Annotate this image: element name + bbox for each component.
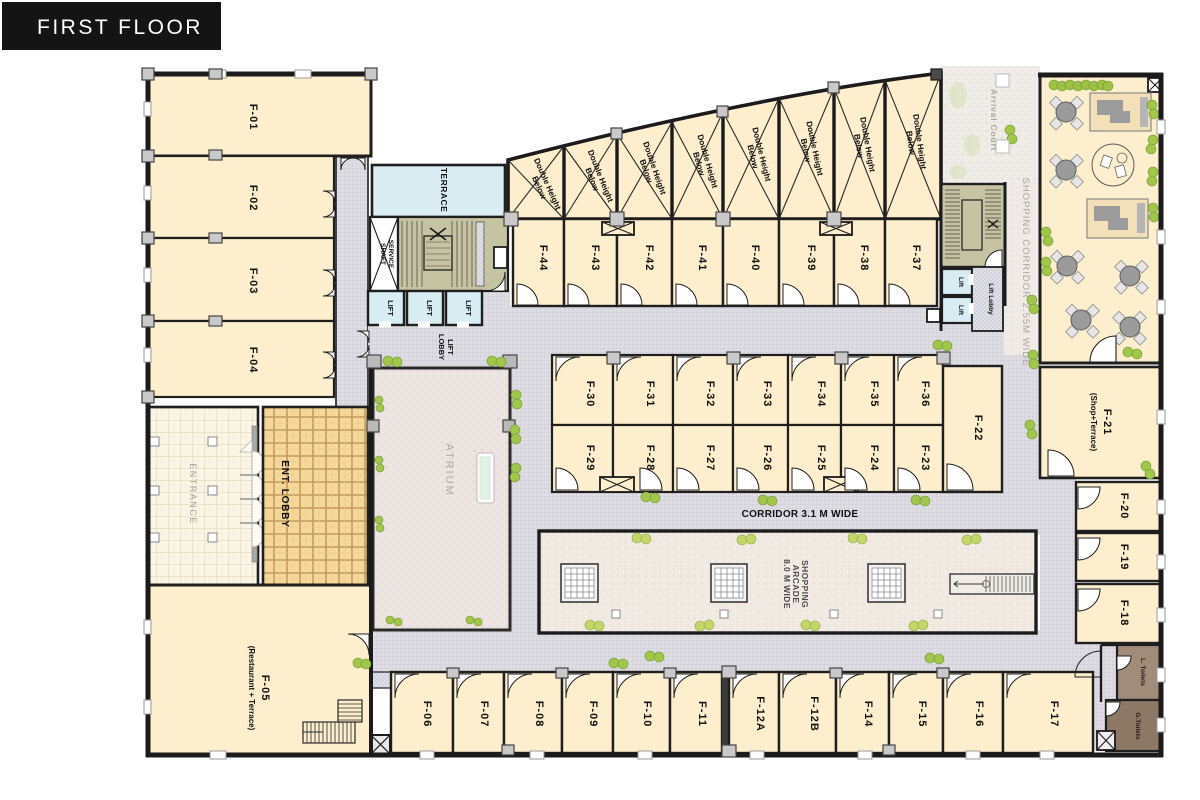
svg-text:F-01: F-01 bbox=[247, 104, 259, 131]
svg-text:F-12A: F-12A bbox=[754, 696, 766, 732]
svg-text:F-42: F-42 bbox=[643, 245, 655, 272]
svg-text:F-33: F-33 bbox=[761, 381, 773, 408]
svg-text:F-11: F-11 bbox=[696, 701, 708, 727]
svg-text:F-17: F-17 bbox=[1048, 701, 1060, 728]
svg-text:F-31: F-31 bbox=[644, 381, 656, 408]
svg-text:(Restaurant + Terrace): (Restaurant + Terrace) bbox=[247, 646, 256, 731]
svg-text:F-29: F-29 bbox=[584, 445, 596, 472]
svg-text:F-07: F-07 bbox=[478, 701, 490, 728]
svg-text:F-37: F-37 bbox=[910, 245, 922, 272]
svg-text:SHOPPING CORRIDOR 2.55M WIDE: SHOPPING CORRIDOR 2.55M WIDE bbox=[1020, 178, 1031, 367]
svg-text:F-27: F-27 bbox=[704, 445, 716, 472]
svg-text:F-09: F-09 bbox=[587, 701, 599, 728]
svg-text:F-25: F-25 bbox=[815, 445, 827, 472]
svg-text:F-08: F-08 bbox=[533, 701, 545, 728]
svg-text:Lift Lobby: Lift Lobby bbox=[987, 283, 994, 315]
svg-text:F-22: F-22 bbox=[972, 415, 984, 442]
svg-text:ENTRANCE: ENTRANCE bbox=[188, 463, 198, 525]
svg-text:(Shop+Terrace): (Shop+Terrace) bbox=[1089, 393, 1098, 452]
svg-text:F-30: F-30 bbox=[584, 381, 596, 408]
svg-text:FIRST FLOOR: FIRST FLOOR bbox=[37, 16, 203, 39]
svg-text:LIFT: LIFT bbox=[446, 339, 455, 355]
svg-text:F-38: F-38 bbox=[858, 245, 870, 272]
svg-text:F-04: F-04 bbox=[247, 347, 259, 374]
svg-text:TERRACE: TERRACE bbox=[439, 168, 449, 213]
svg-text:F-36: F-36 bbox=[919, 381, 931, 408]
svg-text:F-20: F-20 bbox=[1118, 493, 1130, 520]
svg-text:F-43: F-43 bbox=[589, 245, 601, 272]
svg-text:F-40: F-40 bbox=[749, 245, 761, 272]
svg-text:F-05: F-05 bbox=[259, 675, 271, 702]
svg-text:F-23: F-23 bbox=[919, 445, 931, 472]
svg-text:SERVICE: SERVICE bbox=[387, 240, 394, 269]
svg-text:F-19: F-19 bbox=[1118, 544, 1130, 571]
svg-text:LOBBY: LOBBY bbox=[437, 334, 446, 360]
svg-text:F-41: F-41 bbox=[696, 245, 708, 272]
svg-text:F-26: F-26 bbox=[761, 445, 773, 472]
svg-text:Lift: Lift bbox=[957, 305, 964, 316]
svg-text:F-35: F-35 bbox=[868, 381, 880, 408]
svg-text:F-03: F-03 bbox=[247, 268, 259, 295]
svg-text:F-34: F-34 bbox=[815, 381, 827, 408]
svg-text:F-06: F-06 bbox=[421, 701, 433, 728]
svg-text:LIFT: LIFT bbox=[464, 300, 473, 316]
svg-text:F-12B: F-12B bbox=[808, 696, 820, 732]
svg-text:F-24: F-24 bbox=[868, 445, 880, 472]
svg-text:L. Toilets: L. Toilets bbox=[1139, 658, 1146, 686]
svg-text:F-02: F-02 bbox=[247, 185, 259, 212]
svg-text:F-16: F-16 bbox=[973, 701, 985, 728]
svg-text:F-21: F-21 bbox=[1101, 409, 1113, 436]
svg-text:LIFT: LIFT bbox=[386, 300, 395, 316]
svg-text:SHAFT: SHAFT bbox=[379, 243, 386, 265]
svg-text:F-28: F-28 bbox=[644, 445, 656, 472]
svg-text:F-39: F-39 bbox=[805, 245, 817, 272]
svg-text:F-15: F-15 bbox=[916, 701, 928, 728]
svg-text:LIFT: LIFT bbox=[425, 300, 434, 316]
svg-text:G.Toilets: G.Toilets bbox=[1134, 712, 1141, 740]
svg-text:F-32: F-32 bbox=[704, 381, 716, 408]
svg-text:ENT. LOBBY: ENT. LOBBY bbox=[279, 460, 290, 527]
svg-text:CORRIDOR 3.1 M WIDE: CORRIDOR 3.1 M WIDE bbox=[742, 509, 859, 520]
svg-text:Lift: Lift bbox=[957, 277, 964, 288]
svg-text:F-44: F-44 bbox=[537, 245, 549, 272]
svg-text:F-18: F-18 bbox=[1118, 600, 1130, 627]
svg-text:8.0 M WIDE: 8.0 M WIDE bbox=[782, 559, 792, 609]
svg-text:F-14: F-14 bbox=[862, 701, 874, 728]
svg-text:ATRIUM: ATRIUM bbox=[443, 443, 455, 496]
svg-text:F-10: F-10 bbox=[641, 701, 653, 728]
